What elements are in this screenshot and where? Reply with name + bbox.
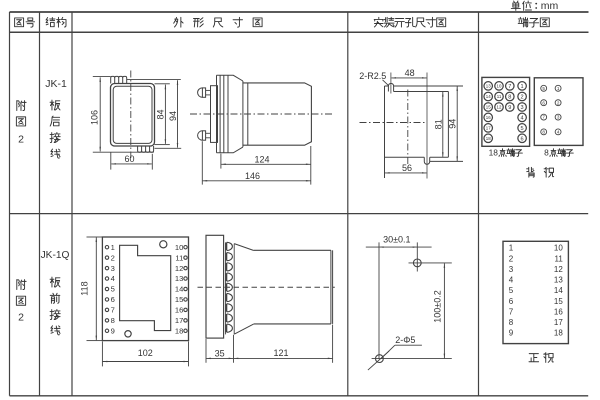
svg-text:146: 146 bbox=[245, 171, 260, 181]
svg-text:2: 2 bbox=[111, 253, 115, 262]
svg-text:9: 9 bbox=[509, 329, 514, 338]
svg-text:4: 4 bbox=[521, 115, 524, 121]
svg-text:11: 11 bbox=[175, 253, 183, 262]
svg-text:17: 17 bbox=[175, 316, 183, 325]
svg-text:10: 10 bbox=[497, 83, 502, 88]
svg-text:18: 18 bbox=[486, 136, 491, 141]
svg-text:7: 7 bbox=[542, 115, 545, 120]
svg-text:12: 12 bbox=[497, 105, 502, 110]
svg-text:1: 1 bbox=[509, 244, 514, 253]
svg-text:14: 14 bbox=[175, 285, 183, 294]
svg-text:6: 6 bbox=[111, 295, 115, 304]
svg-text:11: 11 bbox=[554, 254, 563, 263]
svg-text:106: 106 bbox=[89, 110, 99, 125]
svg-text:13: 13 bbox=[486, 83, 491, 88]
svg-text:1: 1 bbox=[111, 243, 115, 252]
svg-text:118: 118 bbox=[80, 281, 90, 295]
svg-text:17: 17 bbox=[486, 125, 491, 130]
svg-text:10: 10 bbox=[175, 243, 183, 252]
svg-text:15: 15 bbox=[175, 295, 183, 304]
svg-text:4: 4 bbox=[557, 130, 560, 135]
svg-text:7: 7 bbox=[111, 306, 115, 315]
svg-text:3: 3 bbox=[521, 105, 524, 111]
svg-text:1: 1 bbox=[557, 86, 560, 91]
svg-text:2: 2 bbox=[18, 134, 24, 146]
svg-text:5: 5 bbox=[111, 285, 115, 294]
svg-text:3: 3 bbox=[557, 115, 560, 120]
svg-text:94: 94 bbox=[447, 119, 457, 129]
svg-text:124: 124 bbox=[254, 155, 269, 165]
svg-text:4: 4 bbox=[509, 276, 514, 285]
svg-text:8: 8 bbox=[111, 316, 115, 325]
svg-text:16: 16 bbox=[486, 115, 491, 120]
svg-text:102: 102 bbox=[138, 348, 153, 358]
svg-text:30±0.1: 30±0.1 bbox=[383, 235, 410, 245]
svg-text:mm: mm bbox=[541, 0, 559, 12]
svg-text:18: 18 bbox=[489, 148, 499, 158]
svg-text:18: 18 bbox=[554, 329, 563, 338]
svg-text:13: 13 bbox=[175, 274, 183, 283]
svg-text:2-Φ5: 2-Φ5 bbox=[395, 335, 415, 345]
svg-text:10: 10 bbox=[554, 244, 563, 253]
svg-text:11: 11 bbox=[497, 94, 502, 99]
svg-text:15: 15 bbox=[554, 297, 563, 306]
svg-text:35: 35 bbox=[215, 348, 225, 358]
svg-text:16: 16 bbox=[175, 306, 183, 315]
svg-text:2: 2 bbox=[521, 94, 524, 100]
svg-text:18: 18 bbox=[175, 326, 183, 335]
svg-text:7: 7 bbox=[508, 84, 511, 90]
svg-text:1: 1 bbox=[521, 84, 524, 90]
svg-text:9: 9 bbox=[508, 105, 511, 111]
svg-text:17: 17 bbox=[554, 318, 563, 327]
svg-text:12: 12 bbox=[175, 264, 183, 273]
svg-text:60: 60 bbox=[124, 154, 134, 164]
svg-text:5: 5 bbox=[542, 86, 545, 91]
svg-text:100±0.2: 100±0.2 bbox=[433, 290, 443, 322]
svg-text:15: 15 bbox=[486, 105, 491, 110]
svg-text:2: 2 bbox=[18, 312, 24, 324]
svg-text:121: 121 bbox=[273, 348, 288, 358]
svg-text:12: 12 bbox=[554, 265, 563, 274]
svg-text:8: 8 bbox=[542, 130, 545, 135]
svg-text:JK-1: JK-1 bbox=[45, 78, 67, 90]
svg-text:14: 14 bbox=[554, 286, 563, 295]
svg-text:7: 7 bbox=[509, 307, 514, 316]
svg-text:JK-1Q: JK-1Q bbox=[41, 250, 70, 261]
svg-text:6: 6 bbox=[542, 100, 545, 105]
svg-text:8: 8 bbox=[509, 318, 514, 327]
svg-text:81: 81 bbox=[433, 119, 443, 129]
svg-text:5: 5 bbox=[521, 126, 524, 132]
svg-text:6: 6 bbox=[521, 136, 524, 142]
svg-text:2: 2 bbox=[509, 254, 514, 263]
svg-text:14: 14 bbox=[486, 94, 491, 99]
svg-text:2-R2.5: 2-R2.5 bbox=[359, 71, 386, 81]
svg-text:9: 9 bbox=[111, 326, 115, 335]
svg-text:3: 3 bbox=[111, 264, 115, 273]
svg-text:8: 8 bbox=[508, 94, 511, 100]
svg-text:3: 3 bbox=[509, 265, 514, 274]
svg-text:4: 4 bbox=[111, 274, 115, 283]
svg-text:2: 2 bbox=[557, 100, 560, 105]
svg-text:84: 84 bbox=[156, 109, 166, 119]
svg-text:6: 6 bbox=[509, 297, 514, 306]
svg-text:16: 16 bbox=[554, 307, 563, 316]
svg-text:8: 8 bbox=[544, 148, 549, 158]
svg-text:13: 13 bbox=[554, 276, 563, 285]
svg-text:56: 56 bbox=[402, 163, 412, 173]
svg-text:5: 5 bbox=[509, 286, 514, 295]
svg-text:48: 48 bbox=[405, 68, 415, 78]
svg-text:94: 94 bbox=[168, 111, 178, 121]
